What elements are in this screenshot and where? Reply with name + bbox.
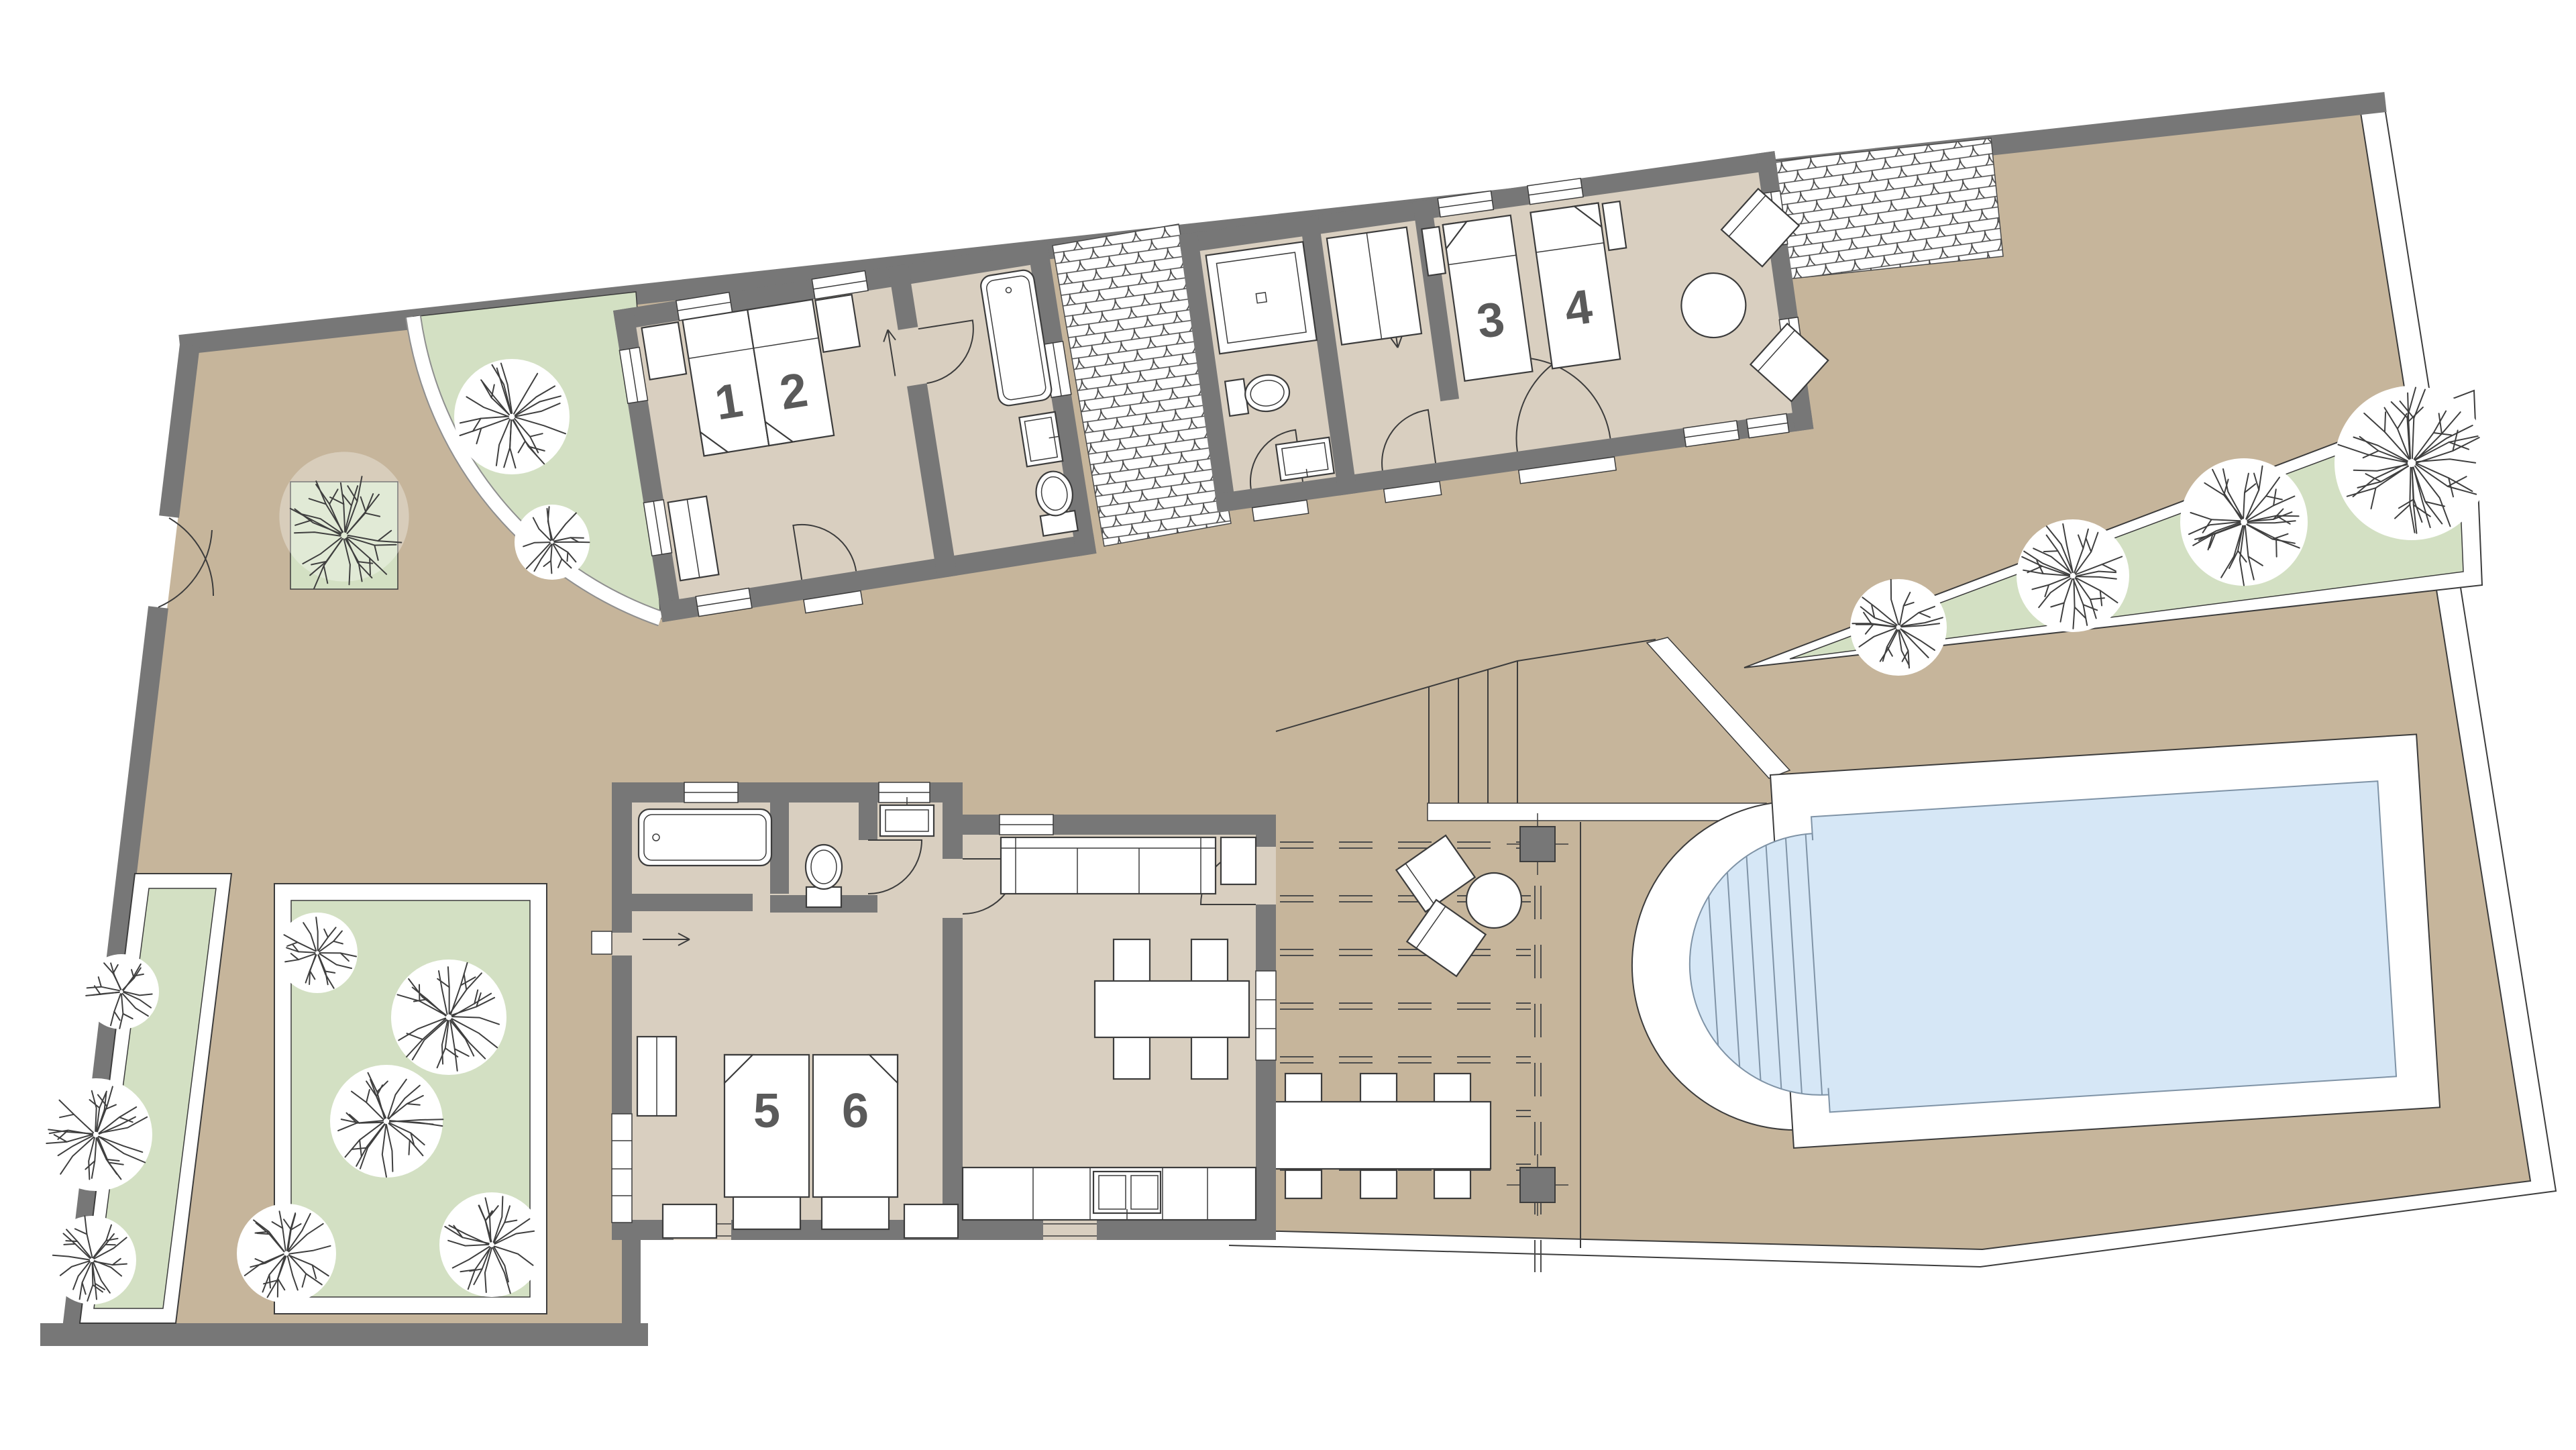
toilet-icon [806,845,842,907]
sink-icon [1019,412,1063,467]
kitchen-sink-icon [1093,1172,1161,1220]
tree-icon [439,1192,544,1297]
tree-icon [84,954,159,1029]
bed-icon [724,1055,809,1229]
bed-label-6: 6 [842,1084,869,1138]
cobblestone-patch-top-right [1775,138,2003,279]
tree-icon [391,960,506,1075]
tree-icon [515,505,590,580]
tree-icon [1850,579,1947,676]
chair-icon [1434,1170,1470,1198]
chair-icon [1285,1074,1322,1102]
chair-icon [1434,1074,1470,1102]
tree-icon [237,1204,336,1303]
nightstand [642,322,687,380]
shower-icon [1206,242,1317,354]
chair-icon [1114,1036,1150,1079]
tree-icon [2017,519,2129,632]
chair-icon [1360,1074,1397,1102]
outdoor-dining-table [1269,1102,1491,1169]
tree-icon [40,1078,152,1191]
round-table-icon [1466,873,1521,928]
nightstand [663,1204,716,1238]
dining-table-icon [1095,981,1249,1037]
floor-plan: 1 2 [0,0,2576,1450]
tree-icon [277,913,358,993]
bed-icon [813,1055,898,1229]
bed-label-5: 5 [753,1084,780,1138]
chair-icon [1285,1170,1322,1198]
sofa-icon [1001,837,1216,894]
sink-icon [1276,437,1334,481]
wardrobe-icon [637,1037,676,1116]
bathtub-icon [639,809,771,866]
nightstand [815,295,860,352]
tree-icon [2180,458,2308,586]
tree-icon [454,359,570,474]
main-house: 5 6 [592,782,1276,1240]
outdoor-dining-set [1269,1074,1491,1198]
chair-icon [1114,939,1150,982]
nightstand [904,1204,958,1238]
chair-icon [1360,1170,1397,1198]
wardrobe-icon [1327,227,1421,345]
tree-icon [2334,386,2489,540]
kitchen-counter [963,1168,1256,1220]
pool-walkway-band [1428,803,1766,821]
chair-icon [1191,1036,1228,1079]
tree-icon [48,1216,136,1304]
tree-icon [330,1065,443,1178]
side-table [1221,837,1256,884]
pool-water [1811,781,2396,1112]
chair-icon [1191,939,1228,982]
